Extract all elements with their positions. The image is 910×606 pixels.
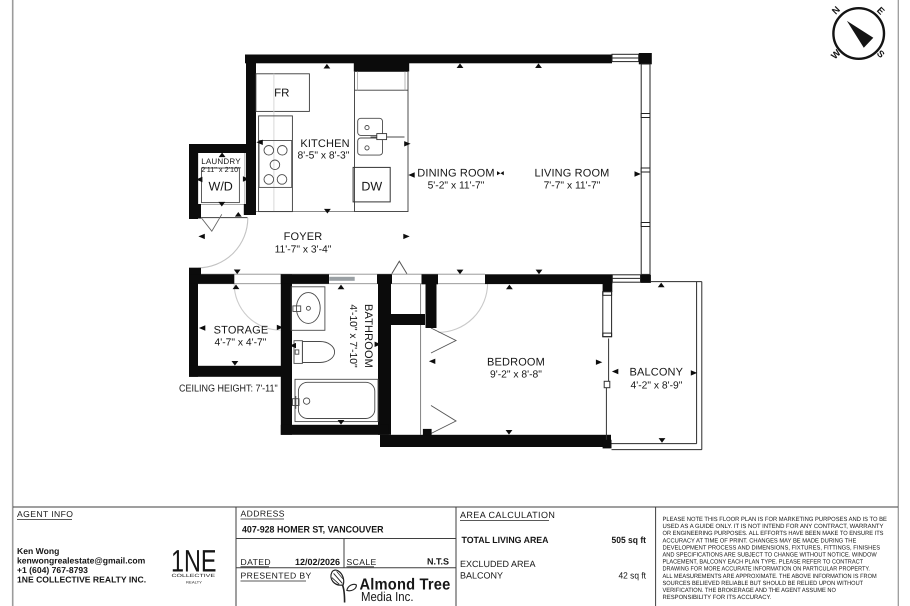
svg-text:7'-7" x 11'-7": 7'-7" x 11'-7" — [544, 181, 601, 192]
svg-text:11'-7" x 3'-4": 11'-7" x 3'-4" — [275, 244, 332, 255]
svg-text:DW: DW — [361, 180, 382, 194]
svg-text:2'11" x 2'10": 2'11" x 2'10" — [201, 165, 241, 174]
svg-text:AREA CALCULATION: AREA CALCULATION — [460, 510, 555, 520]
svg-text:STORAGE: STORAGE — [214, 324, 269, 336]
svg-text:SOURCES BELIEVED RELIABLE BUT: SOURCES BELIEVED RELIABLE BUT SHOULD BE … — [663, 580, 864, 587]
svg-text:9'-2" x 8'-8": 9'-2" x 8'-8" — [490, 369, 542, 380]
svg-text:4'-7" x 4'-7": 4'-7" x 4'-7" — [215, 337, 267, 348]
svg-text:CEILING HEIGHT: 7'-11": CEILING HEIGHT: 7'-11" — [179, 384, 278, 395]
svg-text:DRAWING FOR MORE ACCURATE INFO: DRAWING FOR MORE ACCURATE INFORMATION ON… — [663, 566, 871, 573]
svg-text:42 sq ft: 42 sq ft — [619, 571, 647, 581]
svg-text:KITCHEN: KITCHEN — [300, 138, 349, 150]
svg-text:407-928 HOMER ST, VANCOUVER: 407-928 HOMER ST, VANCOUVER — [242, 523, 384, 534]
svg-text:EXCLUDED AREA: EXCLUDED AREA — [460, 559, 536, 569]
svg-text:1NE COLLECTIVE REALTY INC.: 1NE COLLECTIVE REALTY INC. — [17, 574, 146, 584]
svg-text:505 sq ft: 505 sq ft — [612, 535, 647, 545]
svg-text:OR ENGINEERING PURPOSES. ALL E: OR ENGINEERING PURPOSES. ALL EFFORTS HAV… — [663, 530, 884, 537]
svg-text:VERIFICATION. THE BROKERAGE AN: VERIFICATION. THE BROKERAGE AND THE AGEN… — [663, 587, 837, 594]
svg-text:Media Inc.: Media Inc. — [361, 589, 414, 604]
svg-text:BATHROOM: BATHROOM — [362, 304, 374, 368]
svg-text:RESPONSIBILITY FOR ITS ACCURAC: RESPONSIBILITY FOR ITS ACCURACY. — [663, 594, 772, 601]
svg-text:USED AS A GUIDE ONLY. IT IS NO: USED AS A GUIDE ONLY. IT IS NOT INTEND F… — [663, 523, 884, 530]
svg-text:4'-2" x 8'-9": 4'-2" x 8'-9" — [631, 381, 683, 392]
svg-text:BALCONY: BALCONY — [460, 571, 503, 581]
svg-text:BALCONY: BALCONY — [629, 366, 683, 378]
svg-text:SCALE: SCALE — [347, 557, 377, 567]
svg-text:PLACEMENT, BALCONY EACH PLAN T: PLACEMENT, BALCONY EACH PLAN TYPE. PLEAS… — [663, 559, 864, 566]
svg-text:Ken Wong: Ken Wong — [17, 546, 59, 556]
svg-text:FOYER: FOYER — [284, 231, 323, 243]
svg-text:AGENT INFO: AGENT INFO — [17, 509, 73, 519]
svg-text:LIVING ROOM: LIVING ROOM — [535, 168, 610, 180]
svg-text:ACCURACY AT TIME OF PRINT. CHA: ACCURACY AT TIME OF PRINT. CHANGES MAY B… — [663, 537, 857, 544]
svg-text:N.T.S: N.T.S — [427, 556, 449, 566]
svg-text:COLLECTIVE: COLLECTIVE — [172, 573, 216, 578]
svg-text:PLEASE NOTE THIS FLOOR PLAN IS: PLEASE NOTE THIS FLOOR PLAN IS FOR MARKE… — [663, 516, 887, 523]
svg-text:ALL MEASUREMENTS ARE APPROXIMA: ALL MEASUREMENTS ARE APPROXIMATE. THE AB… — [663, 573, 877, 580]
svg-text:DEVELOPMENT PROCESS AND DIMENS: DEVELOPMENT PROCESS AND DIMENSIONS, FIXT… — [663, 544, 881, 551]
svg-text:8'-5" x 8'-3": 8'-5" x 8'-3" — [298, 151, 350, 162]
svg-text:kenwongrealestate@gmail.com: kenwongrealestate@gmail.com — [17, 555, 146, 565]
svg-text:BEDROOM: BEDROOM — [487, 357, 545, 369]
svg-text:ADDRESS: ADDRESS — [241, 509, 285, 519]
svg-text:TOTAL LIVING AREA: TOTAL LIVING AREA — [462, 535, 549, 545]
svg-text:FR: FR — [274, 88, 289, 100]
svg-text:5'-2" x 11'-7": 5'-2" x 11'-7" — [428, 181, 485, 192]
svg-text:+1 (604) 767-8793: +1 (604) 767-8793 — [17, 565, 88, 575]
svg-text:DINING ROOM: DINING ROOM — [417, 168, 494, 180]
svg-text:AND SPECIFICATIONS ARE SUBJECT: AND SPECIFICATIONS ARE SUBJECT TO CHANGE… — [663, 552, 877, 559]
svg-text:4'-10" x 7'-10": 4'-10" x 7'-10" — [347, 304, 358, 368]
svg-text:PRESENTED BY: PRESENTED BY — [241, 571, 312, 581]
svg-text:DATED: DATED — [241, 557, 272, 567]
svg-text:REALTY: REALTY — [186, 581, 203, 585]
svg-text:W/D: W/D — [209, 179, 233, 193]
svg-text:12/02/2026: 12/02/2026 — [295, 557, 340, 567]
